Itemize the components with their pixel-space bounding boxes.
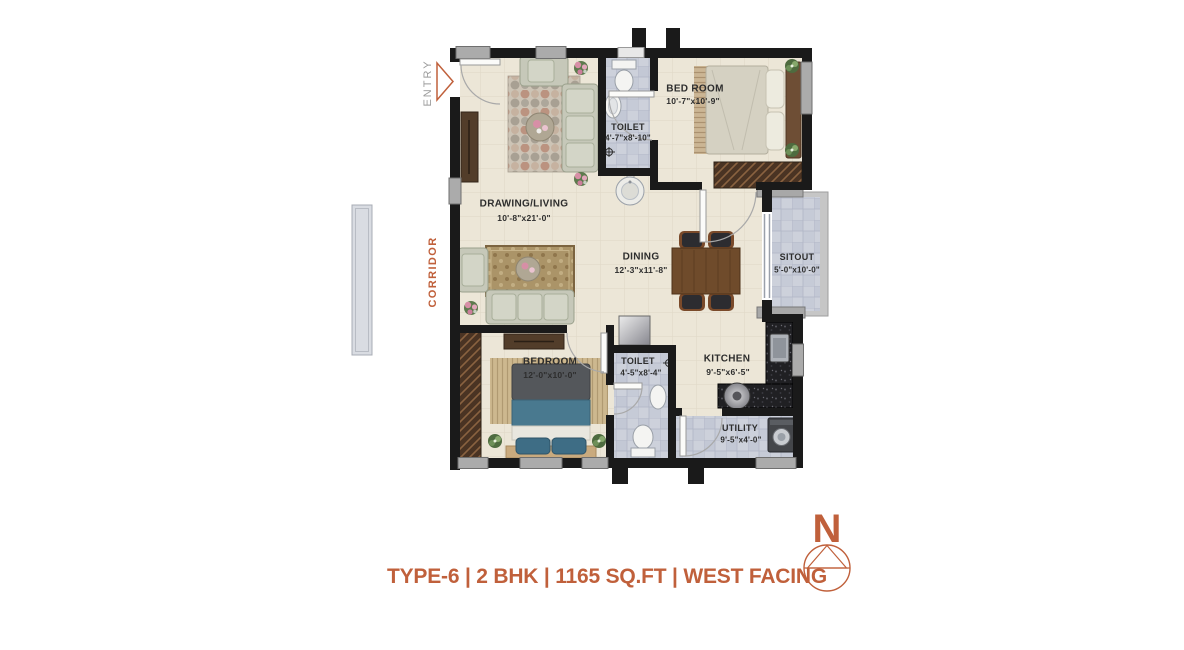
- room-label-kitchen: KITCHEN: [704, 354, 751, 365]
- wc-tank: [631, 448, 655, 457]
- room-label-drawing-living: DRAWING/LIVING: [480, 199, 569, 210]
- plan-caption: TYPE-6 | 2 BHK | 1165 SQ.FT | WEST FACIN…: [387, 565, 827, 589]
- room-dims-dining: 12'-3"x11'-8": [615, 265, 668, 275]
- floor-plan-drawing: [0, 0, 1184, 650]
- window: [449, 178, 461, 204]
- pillow: [516, 438, 550, 454]
- shaft-box: [619, 316, 650, 345]
- room-dims-kitchen: 9'-5"x6'-5": [706, 367, 750, 377]
- living-sofa-set-bottom: [458, 246, 574, 324]
- entry-label: ENTRY: [422, 59, 434, 106]
- pillow: [766, 70, 784, 108]
- window: [458, 458, 488, 469]
- window: [793, 344, 804, 376]
- room-label-toilet-bottom: TOILET: [621, 356, 655, 366]
- window: [456, 47, 490, 59]
- window: [536, 47, 566, 59]
- room-dims-sitout: 5'-0"x10'-0": [774, 266, 820, 275]
- plant-icon: [592, 434, 606, 448]
- wc-bowl: [615, 70, 633, 92]
- coffee-table: [516, 257, 540, 281]
- wc-bowl: [633, 425, 653, 449]
- sink: [650, 385, 666, 409]
- pillow: [552, 438, 586, 454]
- plant-icon: [574, 61, 588, 75]
- room-label-sitout: SITOUT: [780, 252, 815, 262]
- plant-icon: [464, 301, 478, 315]
- room-label-dining: DINING: [623, 252, 660, 263]
- window: [801, 62, 812, 114]
- corridor-label: CORRIDOR: [427, 236, 439, 307]
- dining-chair: [708, 293, 734, 311]
- wc-tank: [612, 60, 636, 69]
- room-label-toilet-top: TOILET: [611, 122, 645, 132]
- window: [756, 458, 796, 469]
- room-label-bedroom-top: BED ROOM: [666, 84, 723, 95]
- dining-chair: [679, 293, 705, 311]
- entry-arrow-icon: [437, 63, 453, 100]
- window: [520, 458, 562, 469]
- room-dims-bedroom-top: 10'-7"x10'-9": [666, 96, 719, 106]
- compass-north-label: N: [813, 509, 842, 549]
- room-label-bedroom-bottom: BEDROOM: [523, 357, 577, 368]
- plant-icon: [574, 172, 588, 186]
- plant-icon: [785, 143, 799, 157]
- pillow: [766, 112, 784, 150]
- ventilator: [618, 48, 644, 58]
- plant-icon: [785, 59, 799, 73]
- room-dims-utility: 9'-5"x4'-0": [720, 436, 761, 445]
- bed-blanket-teal: [512, 400, 590, 426]
- corridor-strip: [352, 205, 372, 355]
- coffee-table: [526, 113, 554, 141]
- room-label-utility: UTILITY: [722, 423, 758, 433]
- window: [582, 458, 608, 469]
- plant-icon: [488, 434, 502, 448]
- room-dims-drawing-living: 10'-8"x21'-0": [497, 213, 550, 223]
- room-dims-bedroom-bottom: 12'-0"x10'-0": [523, 370, 576, 380]
- floor-plan-page: DRAWING/LIVING 10'-8"x21'-0" TOILET 4'-7…: [0, 0, 1184, 650]
- room-dims-toilet-bottom: 4'-5"x8'-4": [620, 369, 661, 378]
- bed-blanket: [706, 66, 768, 154]
- room-dims-toilet-top: 4'-7"x8'-10": [605, 134, 651, 143]
- washing-machine: [768, 418, 795, 452]
- sliding-door: [762, 212, 772, 300]
